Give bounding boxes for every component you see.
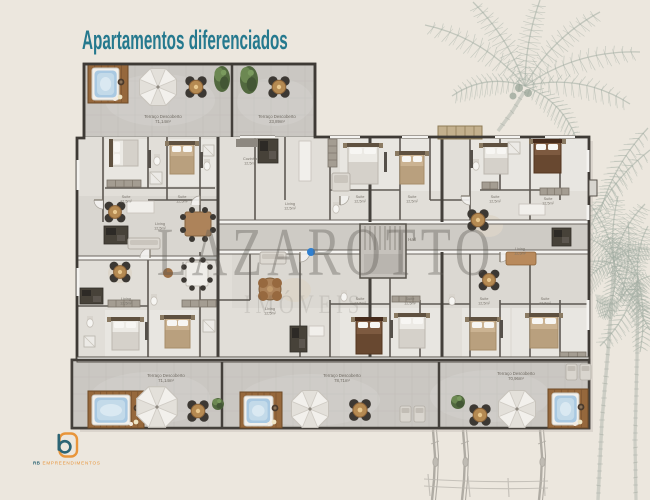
svg-text:Suíte: Suíte xyxy=(406,297,415,301)
svg-text:71,14m²: 71,14m² xyxy=(155,119,171,124)
svg-text:EMPREENDIMENTOS: EMPREENDIMENTOS xyxy=(43,461,101,466)
svg-text:Apartamentos diferenciados: Apartamentos diferenciados xyxy=(82,24,288,55)
svg-text:12,5m²: 12,5m² xyxy=(489,200,502,204)
svg-text:RB: RB xyxy=(33,461,41,466)
svg-text:12,5m²: 12,5m² xyxy=(244,162,257,166)
svg-text:23,89m²: 23,89m² xyxy=(269,119,285,124)
svg-text:Living: Living xyxy=(121,297,131,301)
svg-text:70,96m²: 70,96m² xyxy=(508,376,524,381)
svg-text:12,5m²: 12,5m² xyxy=(120,302,133,306)
svg-text:Suíte: Suíte xyxy=(544,197,553,201)
svg-text:LAZAROTTO: LAZAROTTO xyxy=(157,214,495,290)
svg-text:12,5m²: 12,5m² xyxy=(539,302,552,306)
svg-text:71,14m²: 71,14m² xyxy=(158,378,174,383)
svg-text:78,71m²: 78,71m² xyxy=(334,378,350,383)
svg-text:12,5m²: 12,5m² xyxy=(404,302,417,306)
svg-text:IMÓVEIS: IMÓVEIS xyxy=(244,290,364,320)
svg-text:12,5m²: 12,5m² xyxy=(176,200,189,204)
svg-text:12,5m²: 12,5m² xyxy=(120,200,133,204)
svg-text:12,5m²: 12,5m² xyxy=(354,200,367,204)
svg-text:Suíte: Suíte xyxy=(408,195,417,199)
svg-text:Suíte: Suíte xyxy=(178,195,187,199)
svg-text:12,5m²: 12,5m² xyxy=(478,302,491,306)
svg-text:12,5m²: 12,5m² xyxy=(284,207,297,211)
svg-text:12,5m²: 12,5m² xyxy=(406,200,419,204)
svg-text:Suíte: Suíte xyxy=(491,195,500,199)
svg-text:12,5m²: 12,5m² xyxy=(514,252,527,256)
svg-text:Living: Living xyxy=(285,202,295,206)
svg-text:Living: Living xyxy=(515,247,525,251)
svg-text:Suíte: Suíte xyxy=(541,297,550,301)
svg-text:Suíte: Suíte xyxy=(480,297,489,301)
svg-text:Cozinha: Cozinha xyxy=(243,157,258,161)
svg-text:12,5m²: 12,5m² xyxy=(542,202,555,206)
svg-text:Suíte: Suíte xyxy=(122,195,131,199)
svg-text:Suíte: Suíte xyxy=(356,195,365,199)
